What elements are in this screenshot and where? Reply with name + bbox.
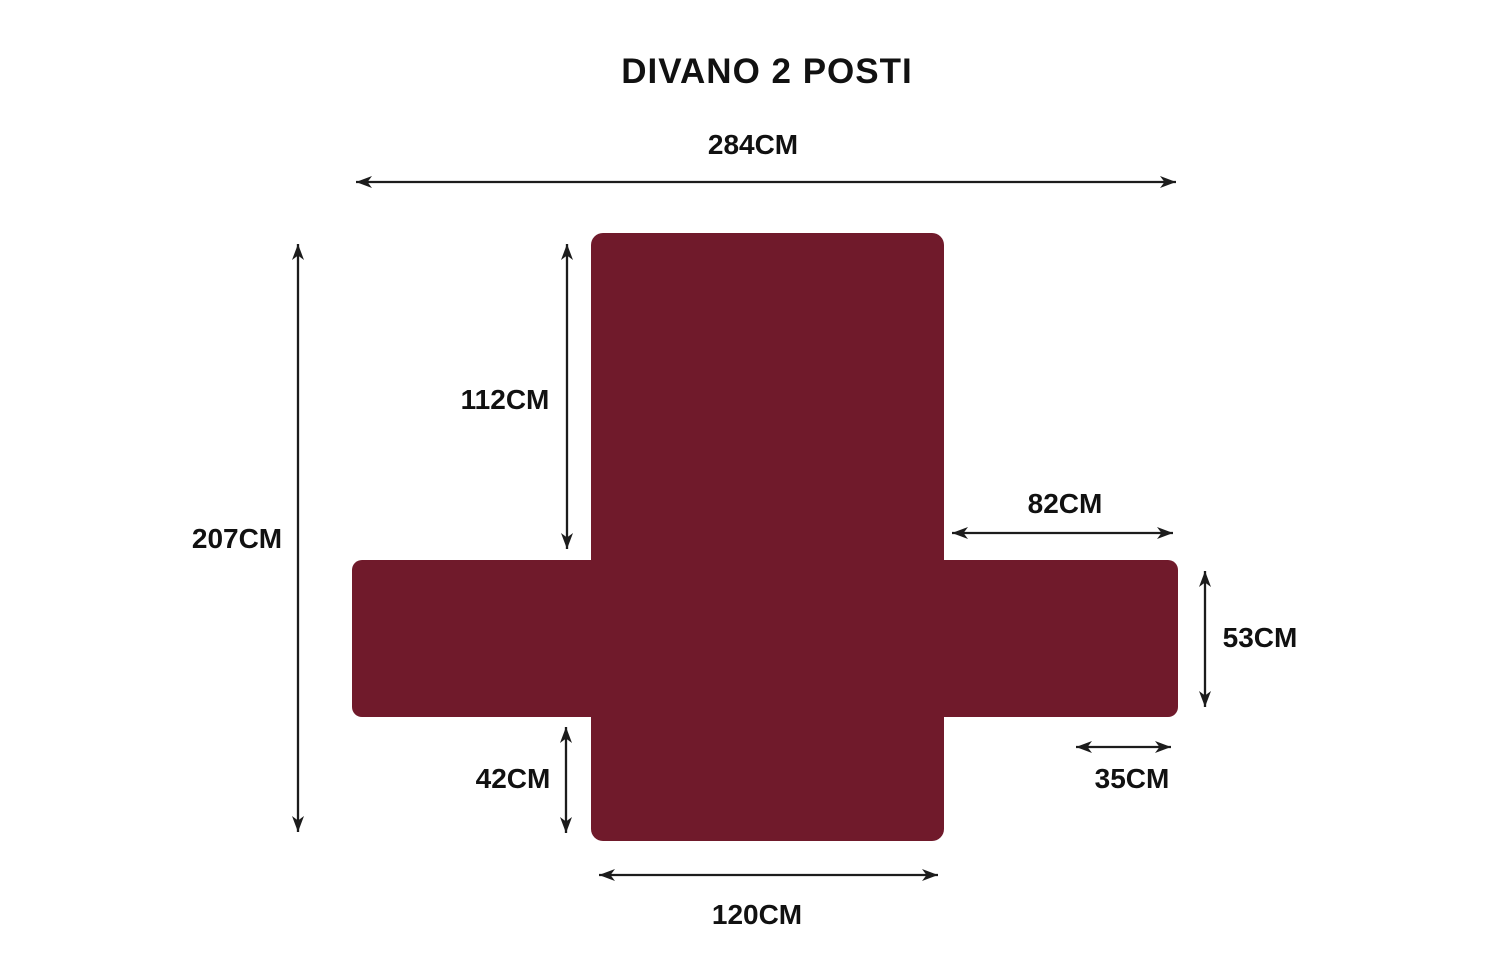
total-height-label: 207CM <box>192 525 282 553</box>
seat-width-label: 120CM <box>712 901 802 929</box>
arm-length-label: 82CM <box>1028 490 1103 518</box>
backrest-height-label: 112CM <box>461 386 550 414</box>
sofa-cover-dimension-diagram: DIVANO 2 POSTI 284CM 207CM 112CM 82CM 53… <box>0 0 1500 955</box>
arm-width-label: 53CM <box>1223 624 1298 652</box>
cover-arms-panel <box>352 560 1178 717</box>
diagram-title: DIVANO 2 POSTI <box>621 52 912 92</box>
flap-width-label: 35CM <box>1095 765 1170 793</box>
total-width-label: 284CM <box>708 131 798 159</box>
cover-backrest-seat-panel <box>591 233 944 841</box>
flap-height-label: 42CM <box>476 765 551 793</box>
